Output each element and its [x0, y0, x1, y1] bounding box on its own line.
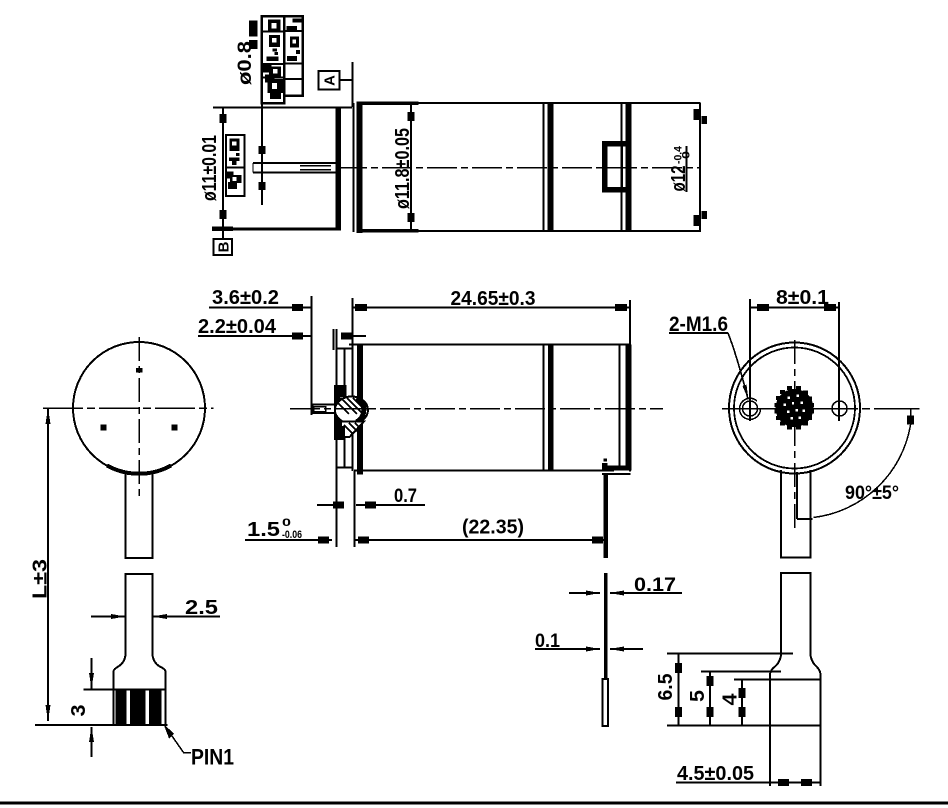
- svg-text:2-M1.6: 2-M1.6: [669, 312, 728, 336]
- svg-text:(22.35): (22.35): [462, 516, 524, 539]
- svg-text:ø11±0.01: ø11±0.01: [198, 135, 221, 201]
- svg-text:-0.06: -0.06: [282, 529, 302, 541]
- svg-text:0.7: 0.7: [394, 486, 417, 507]
- svg-text:A: A: [322, 75, 339, 86]
- svg-text:0.1: 0.1: [535, 631, 560, 652]
- svg-text:3: 3: [67, 705, 90, 717]
- svg-text:3.6±0.2: 3.6±0.2: [212, 286, 279, 309]
- svg-text:24.65±0.3: 24.65±0.3: [451, 287, 536, 310]
- svg-text:B: B: [216, 241, 233, 252]
- svg-text:5: 5: [686, 690, 709, 702]
- svg-text:0.17: 0.17: [634, 575, 676, 596]
- svg-text:8±0.1: 8±0.1: [776, 286, 829, 309]
- svg-text:6.5: 6.5: [654, 674, 677, 701]
- svg-text:-0.4: -0.4: [673, 145, 685, 164]
- svg-text:L±3: L±3: [29, 559, 52, 599]
- svg-text:ø12: ø12: [667, 166, 690, 192]
- svg-text:PIN1: PIN1: [191, 745, 234, 770]
- svg-text:4.5±0.05: 4.5±0.05: [677, 762, 754, 785]
- svg-text:2.5: 2.5: [185, 596, 218, 619]
- svg-text:4: 4: [719, 693, 742, 706]
- svg-text:90°±5°: 90°±5°: [845, 483, 899, 504]
- svg-text:0: 0: [282, 517, 291, 529]
- svg-text:2.2±0.04: 2.2±0.04: [198, 315, 277, 338]
- svg-text:ø0.8: ø0.8: [235, 41, 256, 85]
- svg-text:1.5: 1.5: [247, 518, 280, 541]
- svg-text:ø11.8±0.05: ø11.8±0.05: [391, 128, 414, 209]
